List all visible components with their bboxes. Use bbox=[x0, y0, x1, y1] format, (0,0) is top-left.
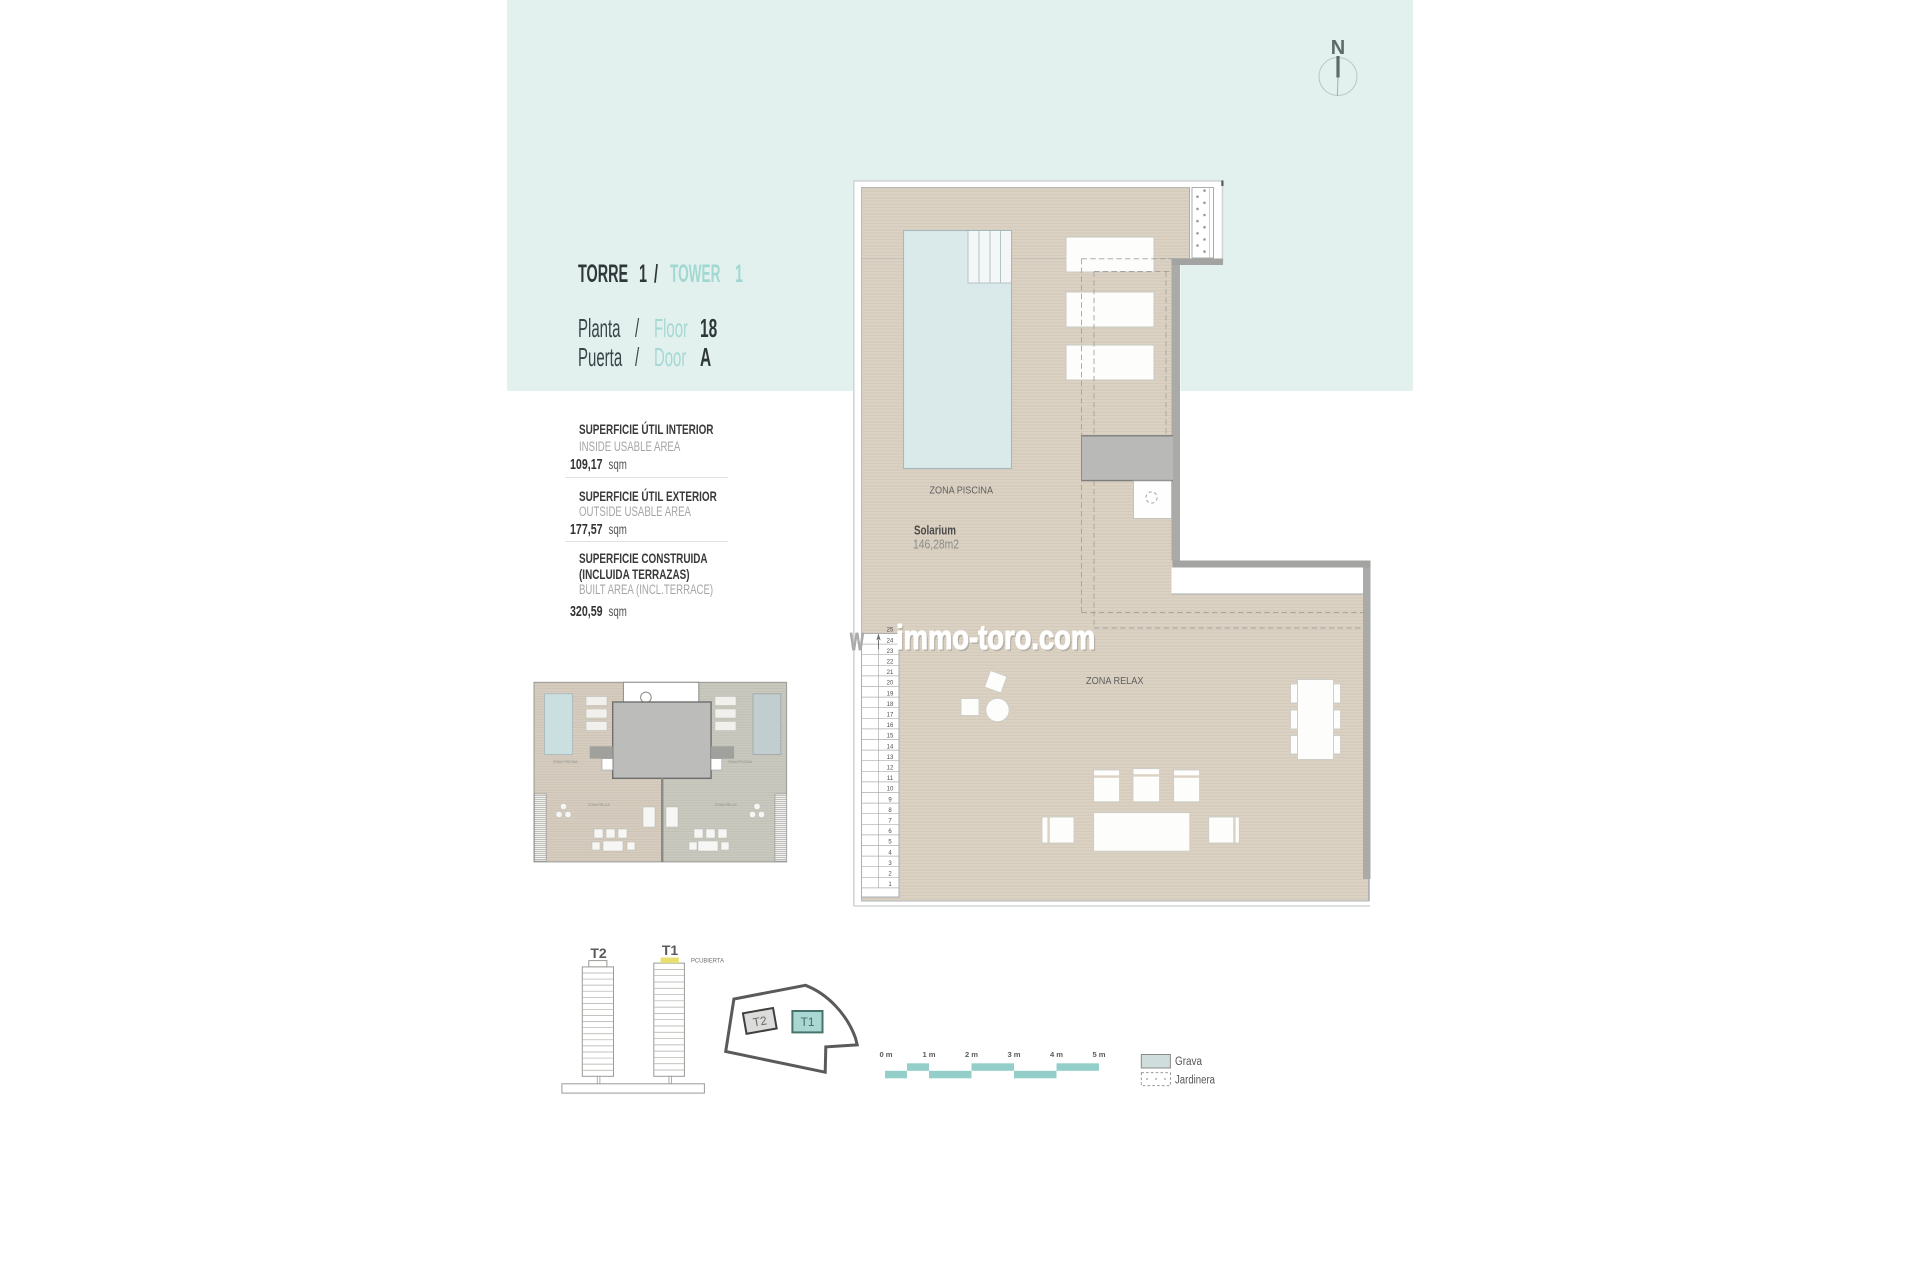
svg-text:15: 15 bbox=[887, 734, 894, 740]
svg-text:24: 24 bbox=[887, 638, 894, 644]
svg-text:10: 10 bbox=[887, 787, 894, 793]
svg-text:Jardinera: Jardinera bbox=[1175, 1075, 1215, 1087]
svg-text:ZONA RELAX: ZONA RELAX bbox=[715, 803, 738, 807]
svg-text:18: 18 bbox=[887, 702, 894, 708]
svg-text:T2: T2 bbox=[752, 1013, 769, 1029]
svg-text:21: 21 bbox=[887, 670, 894, 676]
svg-text:146,28m2: 146,28m2 bbox=[913, 538, 959, 552]
svg-text:5 m: 5 m bbox=[1092, 1050, 1105, 1059]
svg-text:16: 16 bbox=[887, 723, 894, 729]
svg-text:ZONA RELAX: ZONA RELAX bbox=[588, 803, 611, 807]
svg-text:T2: T2 bbox=[590, 945, 607, 961]
svg-text:23: 23 bbox=[887, 649, 894, 655]
svg-text:17: 17 bbox=[887, 713, 894, 719]
svg-text:ZONA PISCINA: ZONA PISCINA bbox=[553, 760, 578, 764]
svg-text:0 m: 0 m bbox=[879, 1050, 892, 1059]
svg-text:1 m: 1 m bbox=[922, 1050, 935, 1059]
svg-text:Solarium: Solarium bbox=[914, 524, 956, 538]
svg-text:ZONA PISCINA: ZONA PISCINA bbox=[727, 760, 752, 764]
svg-text:20: 20 bbox=[887, 681, 894, 687]
svg-text:22: 22 bbox=[887, 660, 894, 666]
svg-text:2 m: 2 m bbox=[965, 1050, 978, 1059]
svg-text:ZONA RELAX: ZONA RELAX bbox=[1086, 675, 1144, 687]
svg-text:13: 13 bbox=[887, 755, 894, 761]
svg-text:3 m: 3 m bbox=[1007, 1050, 1020, 1059]
svg-text:ZONA PISCINA: ZONA PISCINA bbox=[930, 485, 994, 497]
svg-text:T1: T1 bbox=[662, 942, 679, 958]
svg-text:25: 25 bbox=[887, 628, 894, 634]
svg-text:N: N bbox=[1331, 37, 1345, 59]
svg-text:11: 11 bbox=[887, 776, 894, 782]
svg-text:14: 14 bbox=[887, 744, 894, 750]
svg-text:12: 12 bbox=[887, 766, 894, 772]
svg-text:T1: T1 bbox=[800, 1015, 814, 1029]
svg-text:19: 19 bbox=[887, 691, 894, 697]
svg-text:Grava: Grava bbox=[1175, 1056, 1203, 1068]
svg-text:PCUBIERTA: PCUBIERTA bbox=[691, 959, 724, 965]
svg-text:4 m: 4 m bbox=[1050, 1050, 1063, 1059]
